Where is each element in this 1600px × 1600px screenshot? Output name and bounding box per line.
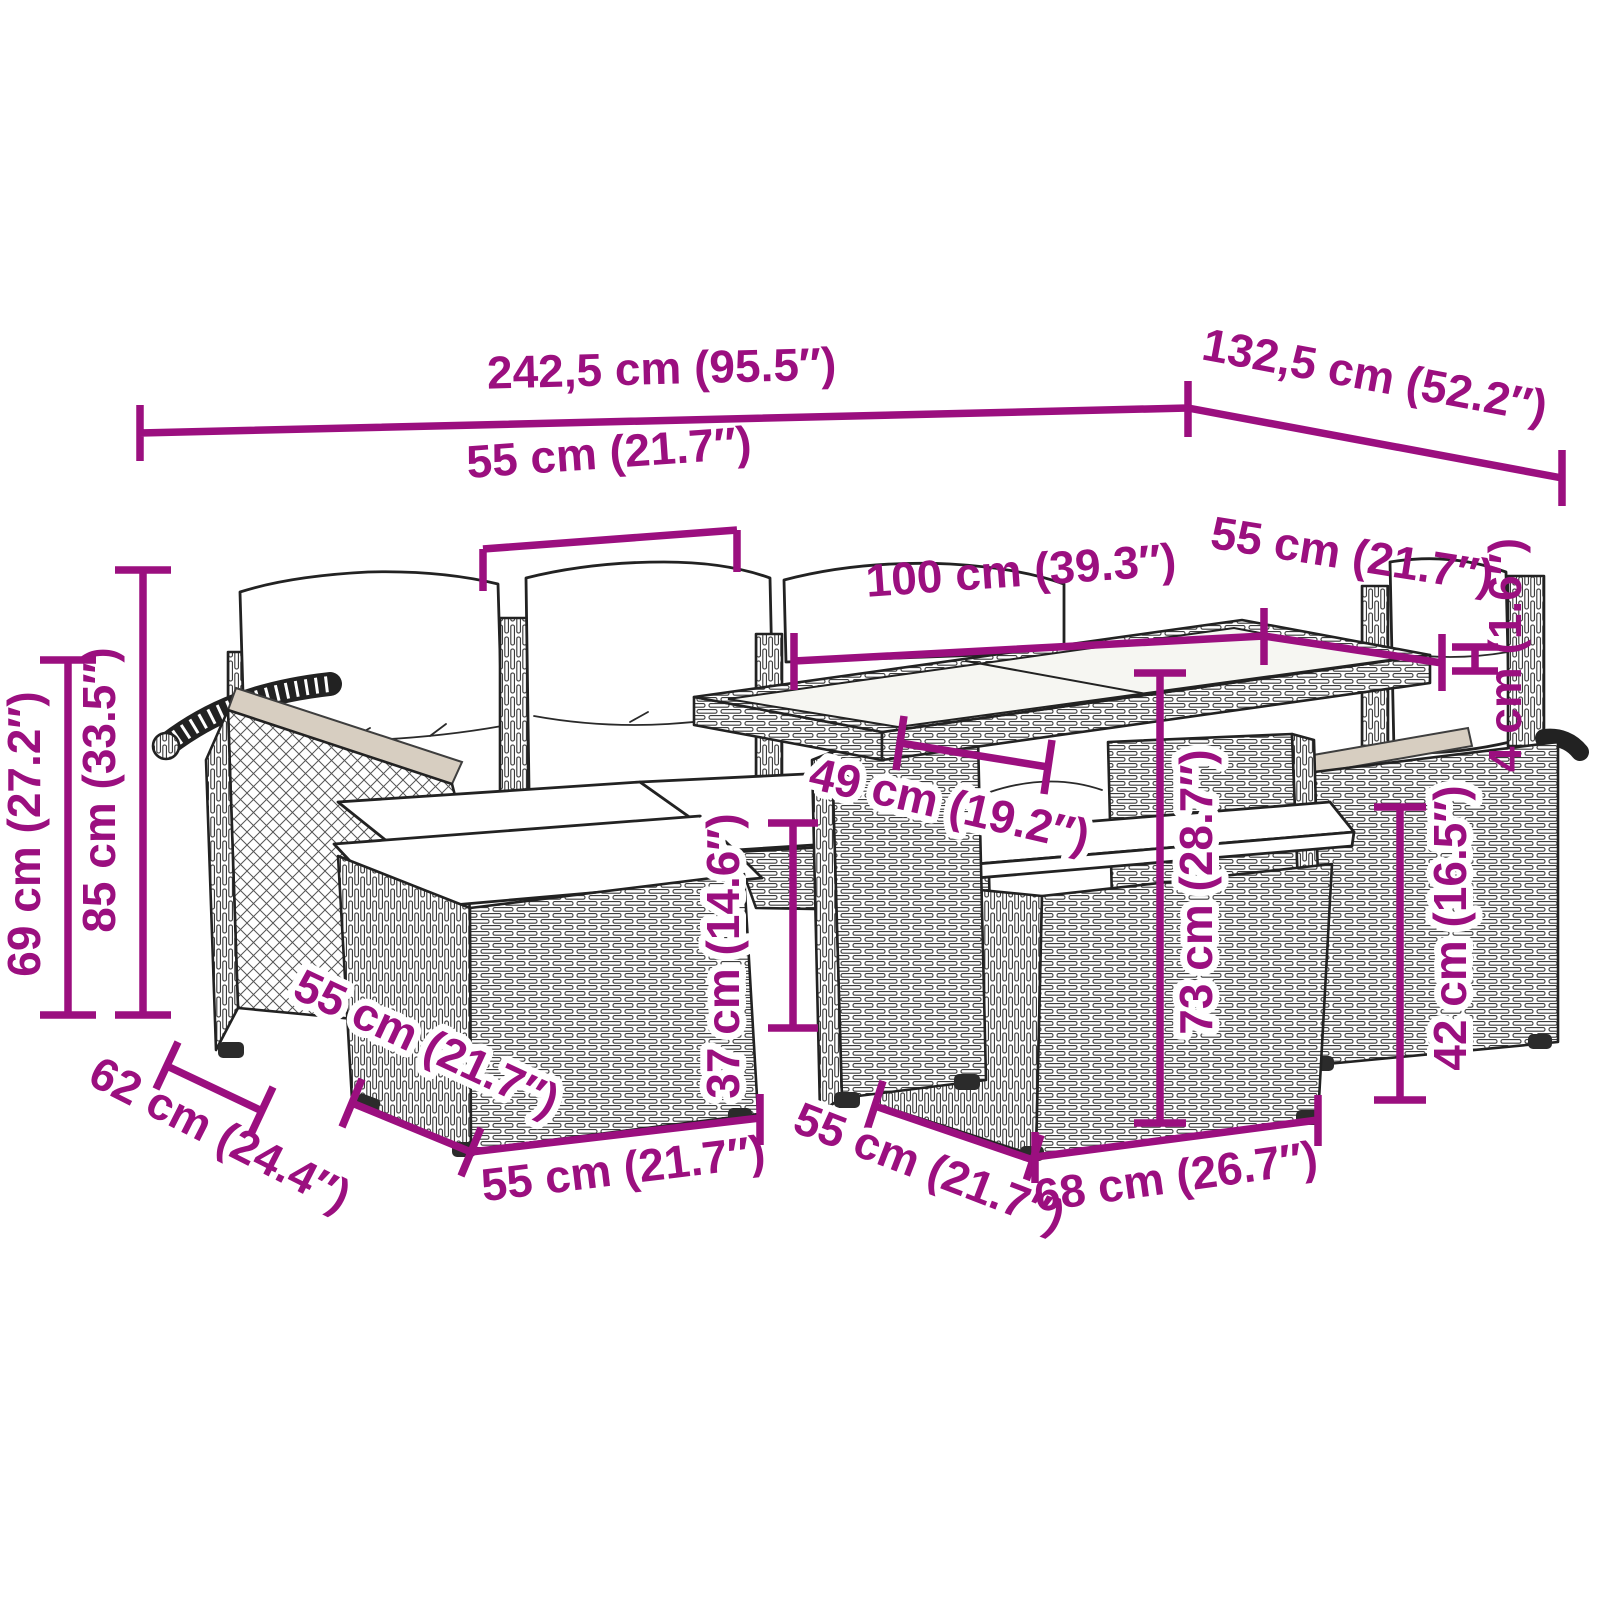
dim-tabletop-thickness-label: 4 cm (1.6″) [1479,538,1531,772]
dim-backrest-height: 85 cm (33.5″) [73,570,171,1015]
dim-table-length-label: 100 cm (39.3″) [864,533,1178,607]
dim-overall-width-label: 242,5 cm (95.5″) [486,337,837,398]
dim-sofa-depth-label: 62 cm (24.4″) [81,1046,359,1222]
table-foot [954,1074,980,1090]
dim-overall-depth-label: 132,5 cm (52.2″) [1198,318,1551,433]
dim-overall-depth: 132,5 cm (52.2″) [1188,318,1562,506]
dim-table-height-label: 73 cm (28.7″) [1170,749,1222,1034]
dim-armrest-height-label: 69 cm (27.2″) [0,691,50,976]
dim-table-depth-label: 55 cm (21.7″) [1207,506,1497,602]
sofa-foot [218,1042,244,1058]
dim-sofa-depth: 62 cm (24.4″) [81,1042,359,1222]
furniture-dimension-drawing: 242,5 cm (95.5″) 132,5 cm (52.2″) 55 cm … [0,0,1600,1600]
armrest-knob [153,733,179,759]
dim-backrest-height-label: 85 cm (33.5″) [73,647,125,932]
sofa-foot [1528,1034,1552,1049]
diagram-canvas: 242,5 cm (95.5″) 132,5 cm (52.2″) 55 cm … [0,0,1600,1600]
dim-stool-height-label: 42 cm (16.5″) [1424,785,1476,1070]
dim-seat-height-label: 37 cm (14.6″) [697,813,749,1098]
